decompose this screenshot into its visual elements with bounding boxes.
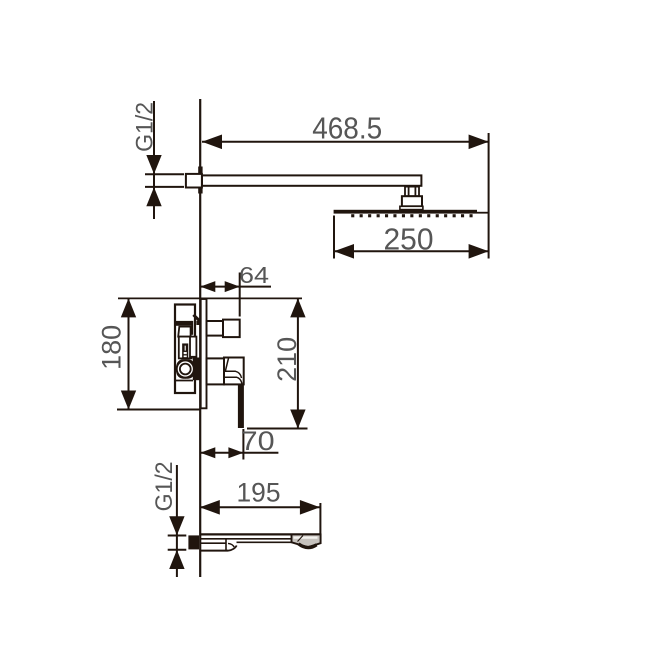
svg-text:70: 70 xyxy=(241,426,275,456)
svg-text:G1/2: G1/2 xyxy=(151,461,178,511)
svg-text:180: 180 xyxy=(97,325,127,370)
svg-text:250: 250 xyxy=(384,222,434,257)
svg-text:468.5: 468.5 xyxy=(312,111,382,146)
svg-text:64: 64 xyxy=(239,262,269,288)
svg-text:210: 210 xyxy=(272,337,302,382)
svg-text:G1/2: G1/2 xyxy=(132,102,159,152)
svg-text:195: 195 xyxy=(237,478,281,508)
